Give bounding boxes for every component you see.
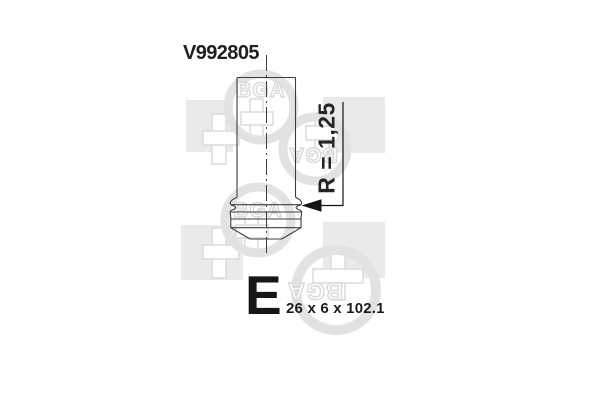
part-number-label: V992805 <box>183 43 259 63</box>
valve-technical-drawing: BGA BGA BGA BGA <box>0 0 600 400</box>
valve-type-letter: E <box>245 268 281 323</box>
cross-icon <box>241 112 273 125</box>
valve-dimensions-label: 26 x 6 x 102.1 <box>286 301 385 316</box>
cross-icon <box>203 131 239 145</box>
product-image: BGA BGA BGA BGA V992805 R = 1,25 E 26 x … <box>0 0 600 400</box>
radius-value-label: R = 1,25 <box>316 102 339 194</box>
arrowhead-icon <box>302 199 322 212</box>
watermark-pattern: BGA BGA BGA BGA <box>181 74 385 330</box>
bga-watermark-text: BGA <box>236 79 286 102</box>
cross-icon <box>236 225 268 238</box>
